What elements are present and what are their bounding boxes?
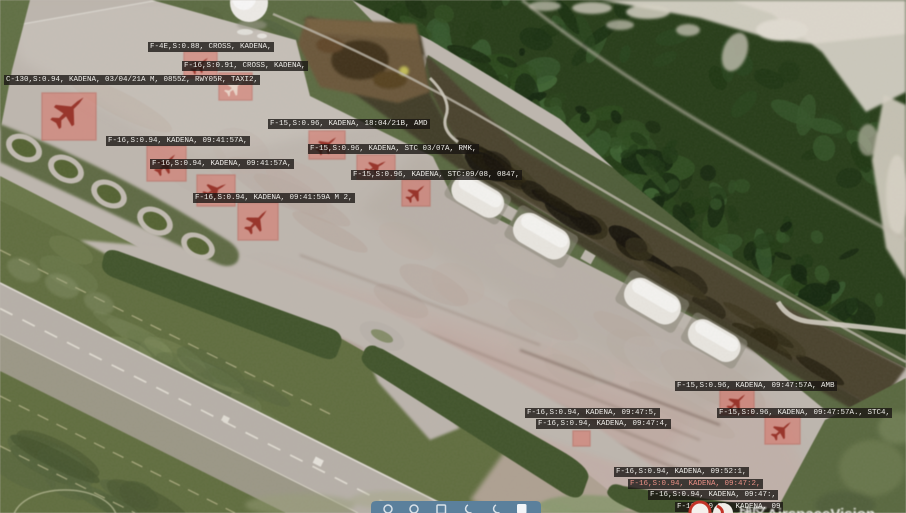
svg-text:战区AirspaceVision: 战区AirspaceVision — [737, 505, 875, 513]
